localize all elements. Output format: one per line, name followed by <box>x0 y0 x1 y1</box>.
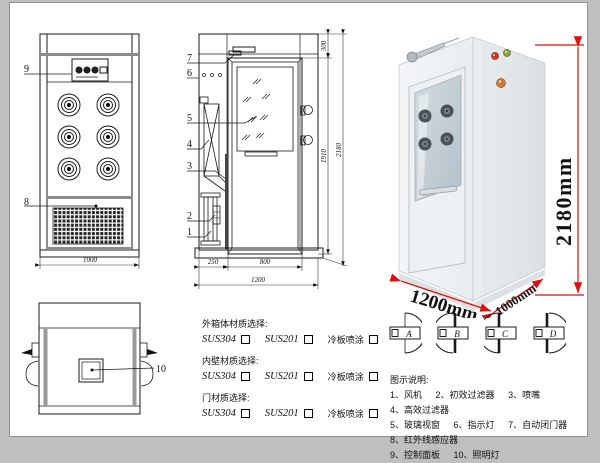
legend-line: 1、风机 2、初效过滤器 3、喷嘴 4、高效过滤器 <box>390 388 592 418</box>
part-label-8: 8 <box>24 197 29 208</box>
material-group-door: 门材质选择: SUS304 SUS201 冷板喷涂 <box>202 391 394 420</box>
part-label-10: 10 <box>156 364 166 375</box>
front-left-column <box>40 34 47 250</box>
plan-left-bracket <box>21 343 39 386</box>
option-label-sus304: SUS304 <box>202 371 236 382</box>
nozzle-icon <box>97 158 119 180</box>
option-label-sus201: SUS201 <box>265 408 299 419</box>
section-leaders <box>187 54 257 237</box>
legend-item: 3、喷嘴 <box>508 390 540 400</box>
part-label-4: 4 <box>187 139 192 150</box>
option-label-coldplate: 冷板喷涂 <box>328 407 364 420</box>
drawing-sheet: 9 8 1000 <box>9 2 588 437</box>
dim-1200: 1200 <box>251 276 266 284</box>
option-label-sus304: SUS304 <box>202 334 236 345</box>
coldplate-checkbox[interactable] <box>369 335 378 344</box>
exhaust-grille <box>53 208 123 244</box>
part-label-7: 7 <box>187 53 192 64</box>
legend-item: 9、控制面板 <box>390 450 440 460</box>
material-selection: 外箱体材质选择: SUS304 SUS201 冷板喷涂 内壁材质选择: SUS3… <box>202 317 394 428</box>
front-top-band <box>40 53 139 56</box>
door-seal-strip <box>225 154 228 249</box>
sus201-checkbox[interactable] <box>304 409 313 418</box>
dim-2180: 2180 <box>335 143 343 158</box>
door-glass <box>237 67 293 151</box>
nozzle-icon <box>58 126 80 148</box>
legend-item: 2、初效过滤器 <box>436 390 495 400</box>
plan-left-seal <box>44 328 48 406</box>
legend-line: 5、玻璃视窗 6、指示灯 7、自动闭门器 8、红外线感应器 <box>390 418 592 448</box>
door-option-letter: D <box>549 329 557 339</box>
orange-button-icon <box>497 79 506 88</box>
door-kick-bar <box>245 152 277 156</box>
dim-250: 250 <box>208 258 219 266</box>
front-mid-band <box>47 196 132 199</box>
door-option-letter: A <box>405 329 412 339</box>
sus201-checkbox[interactable] <box>304 335 313 344</box>
coldplate-checkbox[interactable] <box>369 372 378 381</box>
material-group-outer-box: 外箱体材质选择: SUS304 SUS201 冷板喷涂 <box>202 317 394 346</box>
plan-right-seal <box>133 328 137 406</box>
nozzles-front <box>58 94 119 180</box>
part-label-1: 1 <box>187 227 192 238</box>
part-label-9: 9 <box>24 64 29 75</box>
control-panel <box>72 59 108 81</box>
part-label-2: 2 <box>187 211 192 222</box>
door-option-d-icon[interactable]: D <box>532 306 566 360</box>
option-label-sus201: SUS201 <box>265 371 299 382</box>
door-option-b-icon[interactable]: B <box>436 306 470 360</box>
front-bottom-band <box>47 247 132 250</box>
legend-item: 6、指示灯 <box>454 420 495 430</box>
section-view-drawing: 7 6 5 4 3 2 1 300 1910 2180 250 800 1200 <box>185 9 360 301</box>
material-group-title: 门材质选择: <box>202 391 394 404</box>
dim-300: 300 <box>320 40 328 52</box>
sus201-checkbox[interactable] <box>304 372 313 381</box>
photo-dim-height: 2180mm <box>551 156 576 246</box>
sus304-checkbox[interactable] <box>241 409 250 418</box>
door-option-a-icon[interactable]: A <box>388 306 422 360</box>
dim-800: 800 <box>260 258 271 266</box>
material-group-inner-wall: 内壁材质选择: SUS304 SUS201 冷板喷涂 <box>202 354 394 383</box>
nozzle-icon <box>97 126 119 148</box>
side-nozzle-icon <box>301 106 313 146</box>
filter-box <box>200 97 228 191</box>
door-option-letter: C <box>502 329 509 339</box>
legend-item: 1、风机 <box>390 390 422 400</box>
nozzle-icon <box>97 94 119 116</box>
door-swing-options: A B C D <box>388 306 566 360</box>
front-right-column <box>132 34 139 250</box>
option-label-sus201: SUS201 <box>265 334 299 345</box>
door-option-letter: B <box>454 329 460 339</box>
part-label-5: 5 <box>187 113 192 124</box>
option-label-coldplate: 冷板喷涂 <box>328 370 364 383</box>
dim-1910: 1910 <box>320 149 328 164</box>
door-option-c-icon[interactable]: C <box>484 306 518 360</box>
plan-view-drawing: 10 <box>20 299 190 437</box>
nozzle-icon <box>58 158 80 180</box>
glass-hatch <box>242 79 270 140</box>
material-group-title: 内壁材质选择: <box>202 354 394 367</box>
legend-item: 10、照明灯 <box>454 450 500 460</box>
option-label-coldplate: 冷板喷涂 <box>328 333 364 346</box>
legend-item: 5、玻璃视窗 <box>390 420 440 430</box>
part-label-3: 3 <box>187 161 192 172</box>
legend-line: 9、控制面板 10、照明灯 <box>390 448 592 463</box>
front-view-drawing: 9 8 1000 <box>20 9 190 271</box>
red-light-icon <box>492 53 499 60</box>
material-group-title: 外箱体材质选择: <box>202 317 394 330</box>
part-label-6: 6 <box>187 68 192 79</box>
sus304-checkbox[interactable] <box>241 335 250 344</box>
option-label-sus304: SUS304 <box>202 408 236 419</box>
spec-sheet-page: { "front_view": { "label_9": "9", "label… <box>0 0 600 450</box>
nozzle-icon <box>58 94 80 116</box>
green-light-icon <box>504 50 511 57</box>
cabinet-side-face <box>473 37 545 301</box>
legend-title: 图示说明: <box>390 373 592 388</box>
leader-line-10 <box>92 368 154 370</box>
legend-item: 4、高效过滤器 <box>390 405 449 415</box>
sus304-checkbox[interactable] <box>241 372 250 381</box>
coldplate-checkbox[interactable] <box>369 409 378 418</box>
legend-item: 7、自动闭门器 <box>508 420 567 430</box>
legend-item: 8、红外线感应器 <box>390 435 458 445</box>
product-photo: 2180mm 1200mm 1000mm <box>385 11 587 318</box>
dim-1000: 1000 <box>83 256 98 264</box>
